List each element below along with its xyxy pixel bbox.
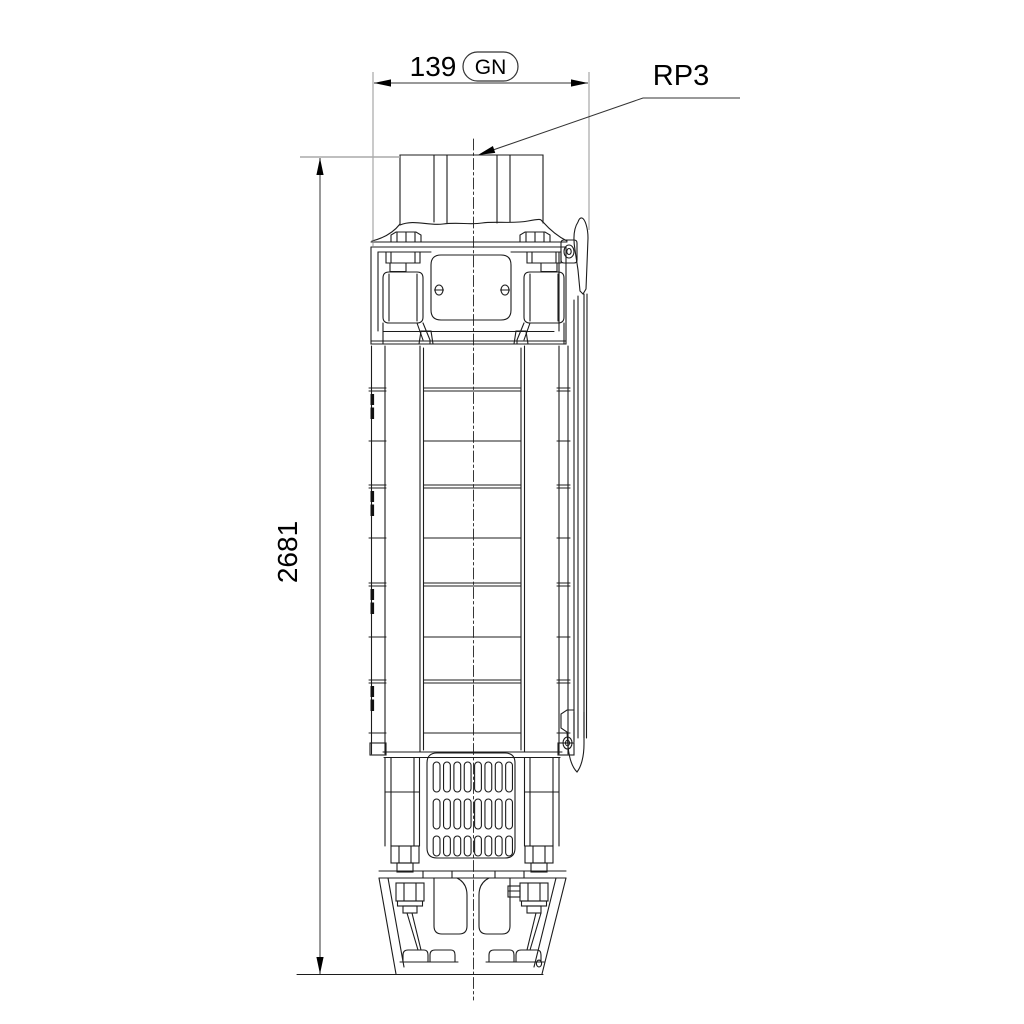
nameplate (431, 255, 511, 320)
left-clamp (383, 252, 430, 344)
left-cable-strap (369, 346, 386, 754)
arrowhead-icon (316, 957, 323, 974)
suction-strainer (427, 753, 515, 858)
width-badge-label: GN (475, 56, 507, 79)
motor-foot (297, 846, 566, 975)
arrowhead-icon (571, 79, 588, 86)
arrowhead-icon (477, 146, 495, 158)
arrowhead-icon (316, 158, 323, 175)
valve-casing (371, 232, 566, 344)
clamp-top-tabs (391, 232, 550, 242)
height-value: 2681 (272, 521, 303, 583)
discharge-pipe (400, 155, 543, 225)
pump-dimensional-drawing: 139 GN RP3 2681 (0, 0, 1024, 1024)
connection-callout: RP3 (477, 60, 740, 158)
foot-nut-icon (520, 883, 548, 913)
pump-stages (369, 346, 574, 758)
side-legs (385, 758, 559, 846)
width-value: 139 (410, 51, 457, 82)
arrowhead-icon (374, 79, 391, 86)
foot-nut-icon (396, 883, 424, 913)
drain-hole-icon (536, 960, 541, 967)
pump-line-art (297, 139, 588, 1000)
height-dimension: 2681 (272, 157, 400, 974)
right-strap (557, 346, 570, 754)
gn-badge: GN (463, 52, 518, 81)
cable-guard (561, 218, 588, 772)
connection-label: RP3 (653, 60, 709, 92)
width-dimension: 139 GN (373, 51, 589, 247)
strainer-slots (433, 762, 512, 856)
drawing-page: 139 GN RP3 2681 (0, 0, 1024, 1024)
leader-line (480, 98, 740, 155)
discharge-shoulder (371, 222, 567, 247)
right-clamp (517, 252, 564, 344)
